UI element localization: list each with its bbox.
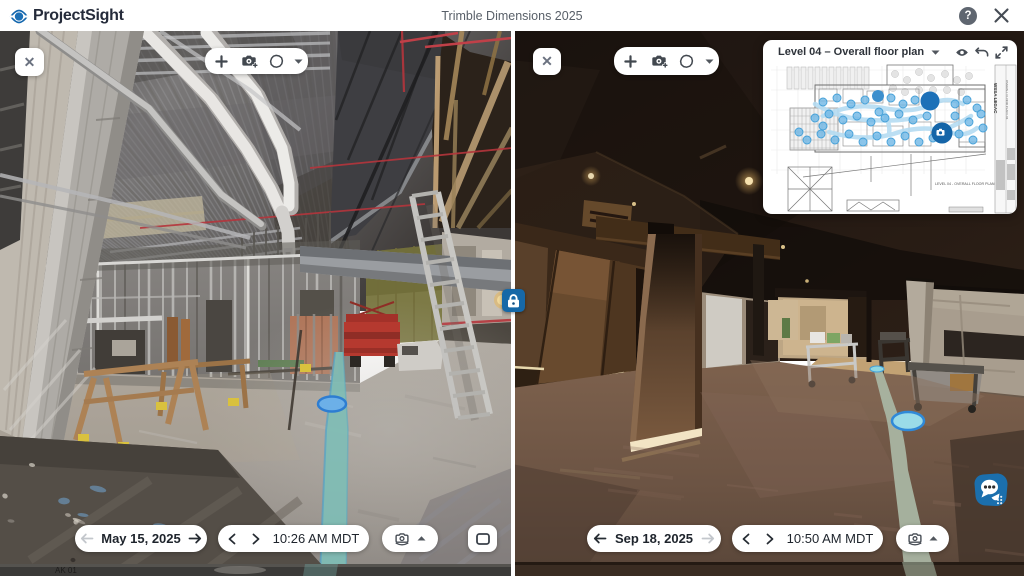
svg-text:LEVEL 04 - OVERALL FLOOR PLAN: LEVEL 04 - OVERALL FLOOR PLAN [935,182,995,186]
svg-text:WSSA LEGAC: WSSA LEGAC [993,83,998,114]
svg-text:OVERALL FLOOR PLAN L04: OVERALL FLOOR PLAN L04 [1005,80,1009,120]
svg-text:AK 01: AK 01 [55,566,77,575]
